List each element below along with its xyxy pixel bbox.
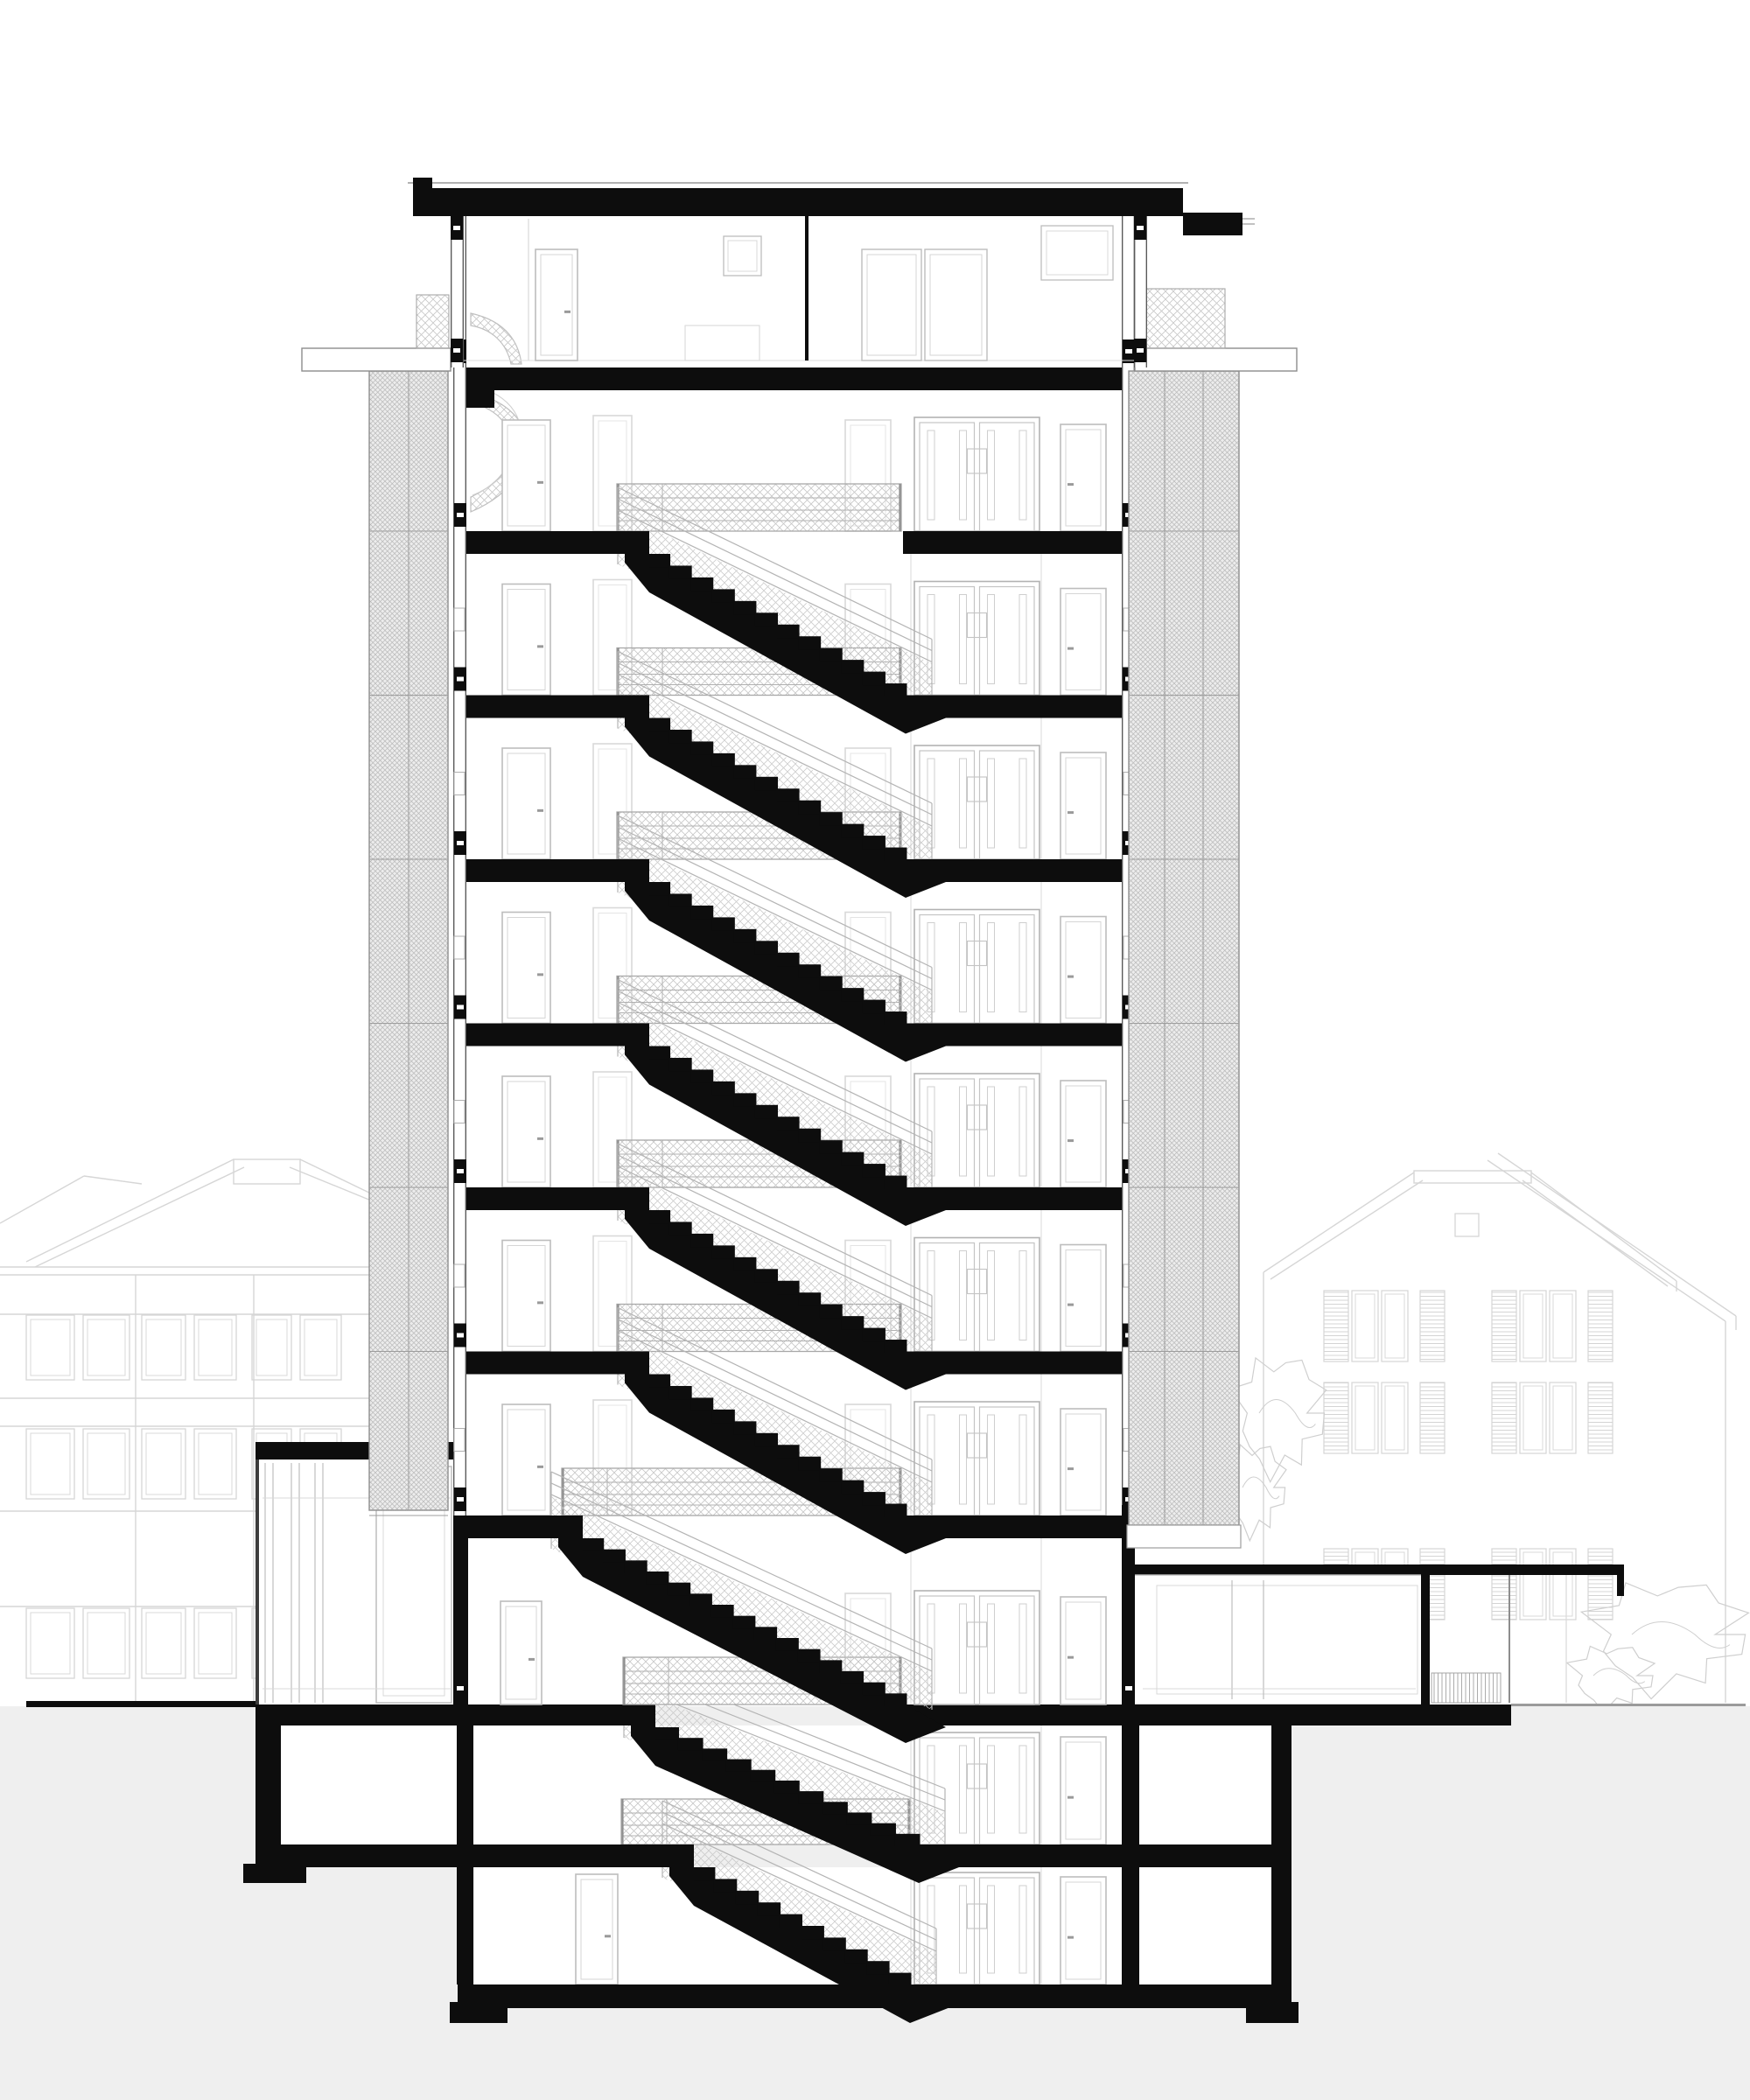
door: [502, 1241, 550, 1352]
shutter-left: [1492, 1549, 1516, 1620]
door-handle: [1067, 976, 1074, 978]
door-handle: [537, 1137, 543, 1140]
roof-right-stub: [1183, 213, 1242, 235]
door: [914, 1074, 1039, 1187]
door-frame: [500, 1601, 542, 1704]
door-frame: [535, 249, 577, 360]
floor-slab: [455, 859, 647, 882]
door: [502, 1076, 550, 1187]
door: [502, 748, 550, 859]
door-frame: [1060, 1409, 1106, 1515]
shutter-left: [1492, 1291, 1516, 1361]
floor-slab: [903, 696, 1135, 718]
door-frame: [1060, 1245, 1106, 1352]
ground-line-right: [1511, 1704, 1746, 1706]
door: [914, 417, 1039, 531]
shutter-left: [1324, 1291, 1348, 1361]
door: [1060, 752, 1106, 859]
door-handle: [1067, 1139, 1074, 1142]
door-handle: [1067, 647, 1074, 650]
floor-slab: [903, 1024, 1135, 1046]
roof-slab: [413, 188, 1183, 216]
shutter-left: [1492, 1382, 1516, 1453]
door: [914, 1591, 1039, 1704]
door: [502, 584, 550, 696]
shutter-right: [1420, 1382, 1445, 1453]
floor-slab: [455, 1352, 647, 1375]
architectural-section-drawing: [0, 0, 1750, 2100]
floor-slab: [455, 1515, 583, 1538]
elevator-door-frame: [914, 745, 1039, 859]
foundation-footing: [243, 1864, 306, 1883]
door: [914, 910, 1039, 1024]
door-frame: [502, 420, 550, 531]
right-extension-grille: [1431, 1673, 1501, 1703]
door: [914, 1238, 1039, 1352]
door-handle: [1067, 1467, 1074, 1470]
basement-wall: [1271, 1725, 1291, 1984]
right-extension-fascia: [1617, 1564, 1624, 1596]
shutter-right: [1588, 1291, 1613, 1361]
door-frame: [1060, 589, 1106, 696]
door: [1060, 1877, 1106, 1984]
shutter-right: [1588, 1382, 1613, 1453]
terrace-planter-left: [416, 295, 449, 348]
basement-wall: [457, 1725, 473, 1984]
door: [914, 1402, 1039, 1515]
wall-window-marker: [454, 1429, 465, 1452]
door-handle: [528, 1658, 535, 1661]
door: [1060, 1737, 1106, 1844]
door-handle: [537, 973, 543, 976]
door: [502, 913, 550, 1024]
door-frame: [502, 913, 550, 1024]
elevator-door-frame: [914, 1591, 1039, 1704]
door-handle: [1067, 483, 1074, 486]
wall-window-marker: [454, 1264, 465, 1287]
door-frame: [502, 584, 550, 696]
elevator-door-frame: [914, 1402, 1039, 1515]
foundation-footing: [1246, 2002, 1298, 2023]
basement-wall: [255, 1704, 281, 1867]
door-handle: [605, 1935, 611, 1937]
door: [502, 420, 550, 531]
elevator-door-frame: [914, 417, 1039, 531]
door-frame: [1060, 1081, 1106, 1187]
door: [914, 745, 1039, 859]
door: [1060, 1597, 1106, 1704]
elevator-door-frame: [914, 1074, 1039, 1187]
door: [1060, 1245, 1106, 1352]
door-handle: [1067, 1656, 1074, 1659]
door-frame: [1060, 1737, 1106, 1844]
door-frame: [502, 1076, 550, 1187]
elevator-door-frame: [914, 582, 1039, 696]
floor-slab: [903, 1352, 1135, 1375]
basement-slab: [255, 1844, 692, 1867]
basement-slab: [906, 1704, 1511, 1725]
door-handle: [537, 481, 543, 484]
door: [1060, 917, 1106, 1024]
door-handle: [1067, 1304, 1074, 1306]
floor-slab: [458, 367, 1135, 390]
door: [576, 1874, 618, 1984]
facade-panel-left: [369, 371, 448, 1515]
door-frame: [1060, 917, 1106, 1024]
floor-slab: [455, 1024, 647, 1046]
door-frame: [502, 1404, 550, 1515]
foundation-footing: [450, 2002, 507, 2023]
door: [535, 249, 577, 360]
floor-slab: [455, 696, 647, 718]
wall-window-marker: [454, 608, 465, 631]
door-handle: [537, 809, 543, 812]
door-handle: [1067, 1796, 1074, 1799]
penthouse-glazing-mullion: [805, 216, 808, 360]
door-handle: [537, 645, 543, 647]
shutter-left: [1324, 1382, 1348, 1453]
wall-window-marker: [454, 1101, 465, 1123]
elevator-door-frame: [914, 910, 1039, 1024]
floor-slab: [903, 531, 1135, 554]
door-handle: [1067, 811, 1074, 814]
door: [1060, 1081, 1106, 1187]
door: [1060, 589, 1106, 696]
basement-wall: [1122, 1717, 1139, 1984]
door: [914, 582, 1039, 696]
floor-slab: [903, 1187, 1135, 1210]
elevator-door-frame: [914, 1238, 1039, 1352]
terrace-planter-right: [1140, 289, 1225, 348]
left-extension-edge: [255, 1459, 259, 1704]
basement-slab: [914, 1844, 1291, 1867]
wall-window-marker: [454, 773, 465, 795]
door-frame: [1060, 1597, 1106, 1704]
door-handle: [537, 1466, 543, 1468]
tower-left-wall-stub: [453, 1515, 468, 1704]
door: [500, 1601, 542, 1704]
door-frame: [502, 748, 550, 859]
door-handle: [564, 311, 570, 313]
door-handle: [537, 1301, 543, 1304]
floor-slab: [903, 859, 1135, 882]
terrace-parapet-right: [1135, 348, 1297, 371]
door-frame: [1060, 1877, 1106, 1984]
door-handle: [1067, 1936, 1074, 1939]
right-extension-room: [1135, 1575, 1424, 1704]
door: [502, 1404, 550, 1515]
basement-slab: [255, 1704, 654, 1725]
floor-slab: [455, 1187, 647, 1210]
building-section-svg: [0, 0, 1750, 2100]
roof-edge-step: [413, 178, 432, 188]
door-frame: [576, 1874, 618, 1984]
terrace-parapet-left: [302, 348, 451, 371]
facade-panel-right: [1127, 371, 1241, 1548]
wall-window-marker: [454, 936, 465, 959]
ground-line-left: [26, 1701, 255, 1707]
tower-left-wall: [453, 216, 466, 1515]
basement-slab: [458, 1984, 1291, 2008]
shutter-right: [1420, 1291, 1445, 1361]
tower-section: [369, 216, 1241, 1743]
door-frame: [1060, 752, 1106, 859]
right-extension-cut-post: [1421, 1571, 1430, 1704]
right-extension-canopy: [1127, 1564, 1621, 1575]
floor-slab: [903, 1515, 1135, 1538]
door-frame: [502, 1241, 550, 1352]
door-frame: [1060, 424, 1106, 531]
floor-slab: [455, 531, 647, 554]
door: [1060, 1409, 1106, 1515]
door: [1060, 424, 1106, 531]
